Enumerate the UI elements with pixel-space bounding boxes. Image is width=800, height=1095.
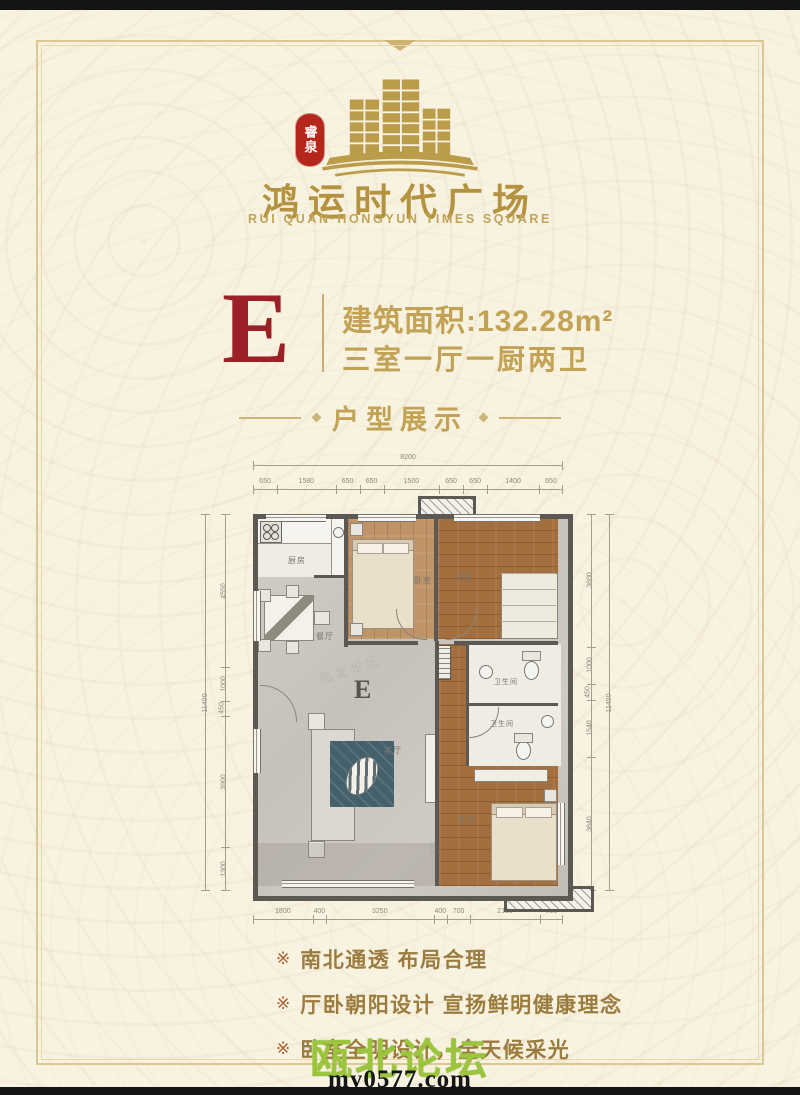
bath-sink-icon: [541, 715, 554, 728]
frame-ornament-icon: [384, 40, 416, 51]
dimension-left-segments: 4550100045039001300: [216, 514, 230, 891]
poster-page: 睿泉 鸿运时代广场 RUI QUAN·HONGYUN TIMES SQUARE …: [0, 0, 800, 1095]
diamond-icon: [312, 413, 322, 423]
dimension-right-segments: 3600100045015403640: [582, 514, 596, 891]
unit-divider-line: [322, 294, 324, 372]
dimension-top-segments: 650158065065015006506501400650: [253, 480, 563, 494]
bath-divider-wall: [466, 703, 558, 706]
toilet-tank: [514, 733, 533, 743]
window: [253, 729, 261, 773]
bath-shelf: [474, 769, 548, 782]
living-label: 客厅: [384, 745, 402, 756]
floorplan: 8200 650158065065015006506501400650 1800…: [186, 448, 618, 930]
bath-upper-label: 卫生间: [494, 677, 518, 687]
unit-letter: E: [210, 282, 302, 376]
kitchen-label: 厨房: [288, 555, 306, 566]
plan-unit-letter: E: [354, 675, 371, 705]
diamond-icon: [479, 413, 489, 423]
toilet-icon: [516, 741, 531, 760]
flower-bullet-icon: ※: [276, 994, 290, 1014]
window: [253, 591, 261, 641]
section-title: 户型展示: [332, 398, 468, 437]
unit-layout-label: 三室一厅一厨两卫: [342, 338, 590, 378]
entry-door-arc: [260, 685, 297, 722]
stove-icon: [260, 521, 282, 543]
wardrobe-doors: [501, 573, 556, 637]
bedroom-center-label: 卧室: [414, 575, 432, 586]
wall: [344, 641, 418, 645]
wall: [454, 641, 558, 645]
wall: [344, 519, 348, 647]
wall: [314, 575, 344, 578]
brand-logo: [0, 74, 800, 183]
nightstand-icon: [350, 523, 363, 536]
chair-icon: [286, 585, 299, 598]
top-black-bar: [0, 0, 800, 10]
feature-item: ※ 厅卧朝阳设计 宣扬鲜明健康理念: [276, 989, 623, 1019]
bath-lower-label: 卫生间: [490, 719, 514, 729]
floorplan-body: 厨房 卧室 主卧 卫生间 卫生间: [253, 514, 573, 901]
dining-label: 餐厅: [316, 631, 334, 642]
unit-area-label: 建筑面积:132.28m²: [342, 296, 613, 340]
window: [282, 880, 414, 888]
dimension-top-total: 8200: [253, 456, 563, 470]
wall: [434, 519, 438, 641]
bedroom-right-label: 主卧: [456, 571, 474, 582]
dimension-right-total: 11400: [600, 514, 614, 891]
brand-seal: 睿泉: [296, 114, 324, 166]
divider-line-right: [499, 417, 561, 419]
toilet-tank: [522, 651, 541, 661]
watermark-site-url: my0577.com: [0, 1066, 800, 1094]
buildings-icon: [295, 74, 505, 178]
toilet-icon: [524, 661, 539, 680]
bed-icon: [491, 803, 557, 881]
side-table-icon: [308, 713, 325, 730]
dimension-left-total: 11400: [196, 514, 210, 891]
window: [454, 514, 540, 522]
feature-text: 厅卧朝阳设计 宣扬鲜明健康理念: [300, 989, 622, 1019]
brand-subtitle: RUI QUAN·HONGYUN TIMES SQUARE: [0, 212, 800, 226]
nightstand-icon: [350, 623, 363, 636]
flower-bullet-icon: ※: [276, 949, 290, 969]
bath-sink-icon: [479, 665, 493, 679]
chair-icon: [314, 611, 330, 625]
divider-line-left: [239, 417, 301, 419]
nightstand-icon: [544, 789, 557, 802]
kitchen-sink-icon: [333, 527, 344, 538]
chair-icon: [286, 641, 299, 654]
feature-item: ※ 南北通透 布局合理: [276, 944, 623, 974]
window: [557, 803, 565, 865]
dining-table-icon: [264, 595, 314, 641]
feature-text: 南北通透 布局合理: [300, 944, 487, 974]
window: [358, 514, 416, 522]
seal-text: 睿泉: [301, 125, 320, 155]
section-divider: 户型展示: [0, 398, 800, 437]
dimension-bottom-segments: 180040032504007002100700: [253, 910, 563, 924]
window: [266, 514, 326, 522]
plan-watermark-text: 瓯北论坛: [317, 650, 384, 688]
